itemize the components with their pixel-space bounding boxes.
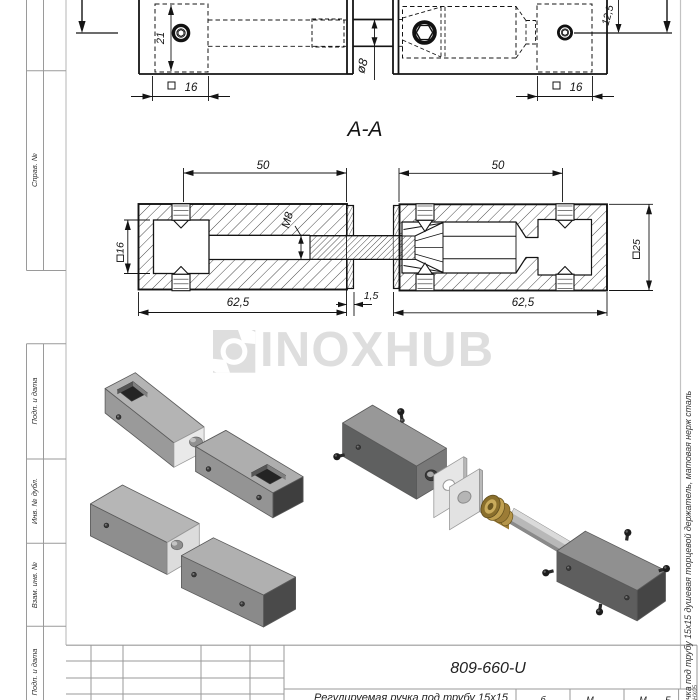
svg-text:25: 25 (631, 239, 643, 252)
svg-text:50: 50 (257, 160, 270, 172)
svg-text:Б: Б (665, 695, 671, 700)
svg-text:62,5: 62,5 (512, 297, 535, 309)
svg-text:62,5: 62,5 (227, 297, 250, 309)
svg-text:1,5: 1,5 (364, 290, 379, 302)
svg-text:21: 21 (155, 32, 167, 45)
svg-text:Инв. № дубл.: Инв. № дубл. (30, 478, 39, 524)
svg-text:50: 50 (492, 160, 505, 172)
svg-text:чка под трубу 15х15 душевая т: чка под трубу 15х15 душевая торцевой дер… (683, 390, 693, 700)
svg-text:809-660-U: 809-660-U (450, 660, 526, 677)
svg-text:Справ. №: Справ. № (30, 153, 39, 187)
svg-text:Регулируемая ручка под трубу 1: Регулируемая ручка под трубу 15х15 (314, 692, 509, 700)
svg-text:Взам. инв. №: Взам. инв. № (30, 562, 39, 608)
svg-text:16: 16 (570, 82, 583, 94)
svg-text:Подп. и дата: Подп. и дата (30, 378, 39, 425)
svg-text:16: 16 (185, 82, 198, 94)
svg-text:М: М (639, 695, 647, 700)
svg-text:16: 16 (115, 242, 127, 254)
svg-text:INOXHUB: INOXHUB (260, 323, 494, 377)
svg-text:Подп. и дата: Подп. и дата (30, 649, 39, 696)
svg-text:М: М (586, 695, 594, 700)
svg-text:НХ05: НХ05 (693, 684, 699, 700)
svg-text:А-А: А-А (345, 118, 382, 141)
